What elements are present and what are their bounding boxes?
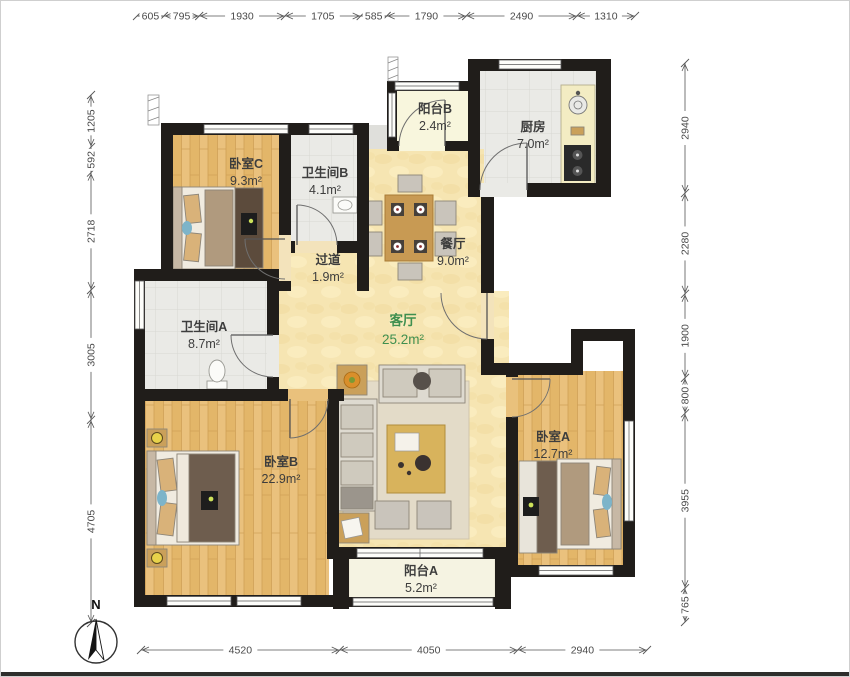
room-area-bathroom-b: 4.1m²: [309, 183, 341, 197]
window: [357, 549, 483, 558]
room-area-hallway: 1.9m²: [312, 270, 344, 284]
duct-shaft: [369, 125, 387, 151]
room-area-living: 25.2m²: [382, 332, 425, 347]
dimension-value: 1790: [415, 11, 439, 23]
window: [539, 566, 613, 575]
room-label-bedroom-b: 卧室B: [264, 454, 298, 469]
dimension-value: 2280: [680, 232, 692, 256]
window: [353, 598, 493, 606]
balcony-b-floor: [395, 89, 469, 143]
sink-icon: [333, 197, 357, 213]
room-label-balcony-a: 阳台A: [404, 563, 438, 578]
dimension-value: 4705: [86, 510, 98, 534]
dimension-value: 3005: [86, 343, 98, 367]
room-area-bedroom-b: 22.9m²: [262, 472, 301, 486]
dimension-chain-top: 60579519301705585179024901310: [133, 10, 639, 23]
room-area-bathroom-a: 8.7m²: [188, 337, 220, 351]
dimension-value: 795: [173, 11, 191, 23]
dimension-value: 1705: [311, 11, 335, 23]
kitchen-counter-icon: [561, 85, 595, 185]
sofa-set-icon: [337, 365, 469, 543]
room-label-living: 客厅: [389, 312, 417, 328]
compass-north-label: N: [91, 597, 100, 612]
dimension-value: 1310: [594, 11, 618, 23]
room-label-bedroom-c: 卧室C: [229, 156, 263, 171]
window: [135, 281, 144, 329]
window: [395, 82, 459, 90]
room-label-bathroom-a: 卫生间A: [181, 319, 228, 334]
dimension-value: 2490: [510, 11, 534, 23]
room-label-dining: 餐厅: [439, 236, 466, 251]
dimension-value: 765: [680, 596, 692, 614]
balcony-a-floor: [349, 555, 495, 603]
compass: N: [75, 597, 117, 663]
dimension-value: 592: [86, 151, 98, 169]
compass-needle-icon: [96, 619, 104, 660]
room-area-balcony-b: 2.4m²: [419, 119, 451, 133]
bottom-edge-bar: [1, 672, 850, 677]
room-label-bedroom-a: 卧室A: [536, 429, 570, 444]
dimension-value: 2940: [680, 116, 692, 140]
dimension-value: 800: [680, 387, 692, 405]
room-area-balcony-a: 5.2m²: [405, 581, 437, 595]
dimension-value: 4050: [417, 645, 441, 657]
bay-window-hatch: [388, 57, 398, 81]
dimension-value: 585: [365, 11, 383, 23]
room-area-bedroom-c: 9.3m²: [230, 174, 262, 188]
room-label-balcony-b: 阳台B: [418, 101, 452, 116]
window: [204, 125, 288, 134]
bed-icon: [173, 187, 235, 269]
window: [237, 597, 301, 606]
room-label-bathroom-b: 卫生间B: [302, 165, 349, 180]
dimension-value: 4520: [229, 645, 253, 657]
dimension-value: 2940: [571, 645, 595, 657]
dimension-value: 1900: [680, 324, 692, 348]
bay-window-hatch: [148, 95, 159, 125]
dimension-chain-bottom: 452040502940: [137, 644, 651, 657]
floor-plan-svg: 卧室C 9.3m² 卫生间B 4.1m² 过道 1.9m² 阳台B 2.4m² …: [1, 1, 850, 677]
window: [309, 125, 353, 134]
dimension-chain-left: 1205592271830054705: [85, 91, 98, 627]
room-area-dining: 9.0m²: [437, 254, 469, 268]
dimension-value: 1930: [230, 11, 254, 23]
window: [167, 597, 231, 606]
room-area-bedroom-a: 12.7m²: [534, 447, 573, 461]
window: [499, 60, 561, 69]
dimension-value: 1205: [86, 109, 98, 133]
window: [389, 93, 396, 137]
dimension-value: 2718: [86, 219, 98, 243]
bed-icon: [519, 459, 621, 553]
room-label-hallway: 过道: [315, 252, 341, 267]
floor-plan-page: 卧室C 9.3m² 卫生间B 4.1m² 过道 1.9m² 阳台B 2.4m² …: [0, 0, 850, 677]
room-label-kitchen: 厨房: [520, 119, 545, 134]
dimension-value: 605: [142, 11, 160, 23]
room-area-kitchen: 7.0m²: [517, 137, 549, 151]
window: [625, 421, 634, 521]
dimension-value: 3955: [680, 489, 692, 513]
dimension-chain-right: 2940228019008003955765: [679, 59, 692, 626]
